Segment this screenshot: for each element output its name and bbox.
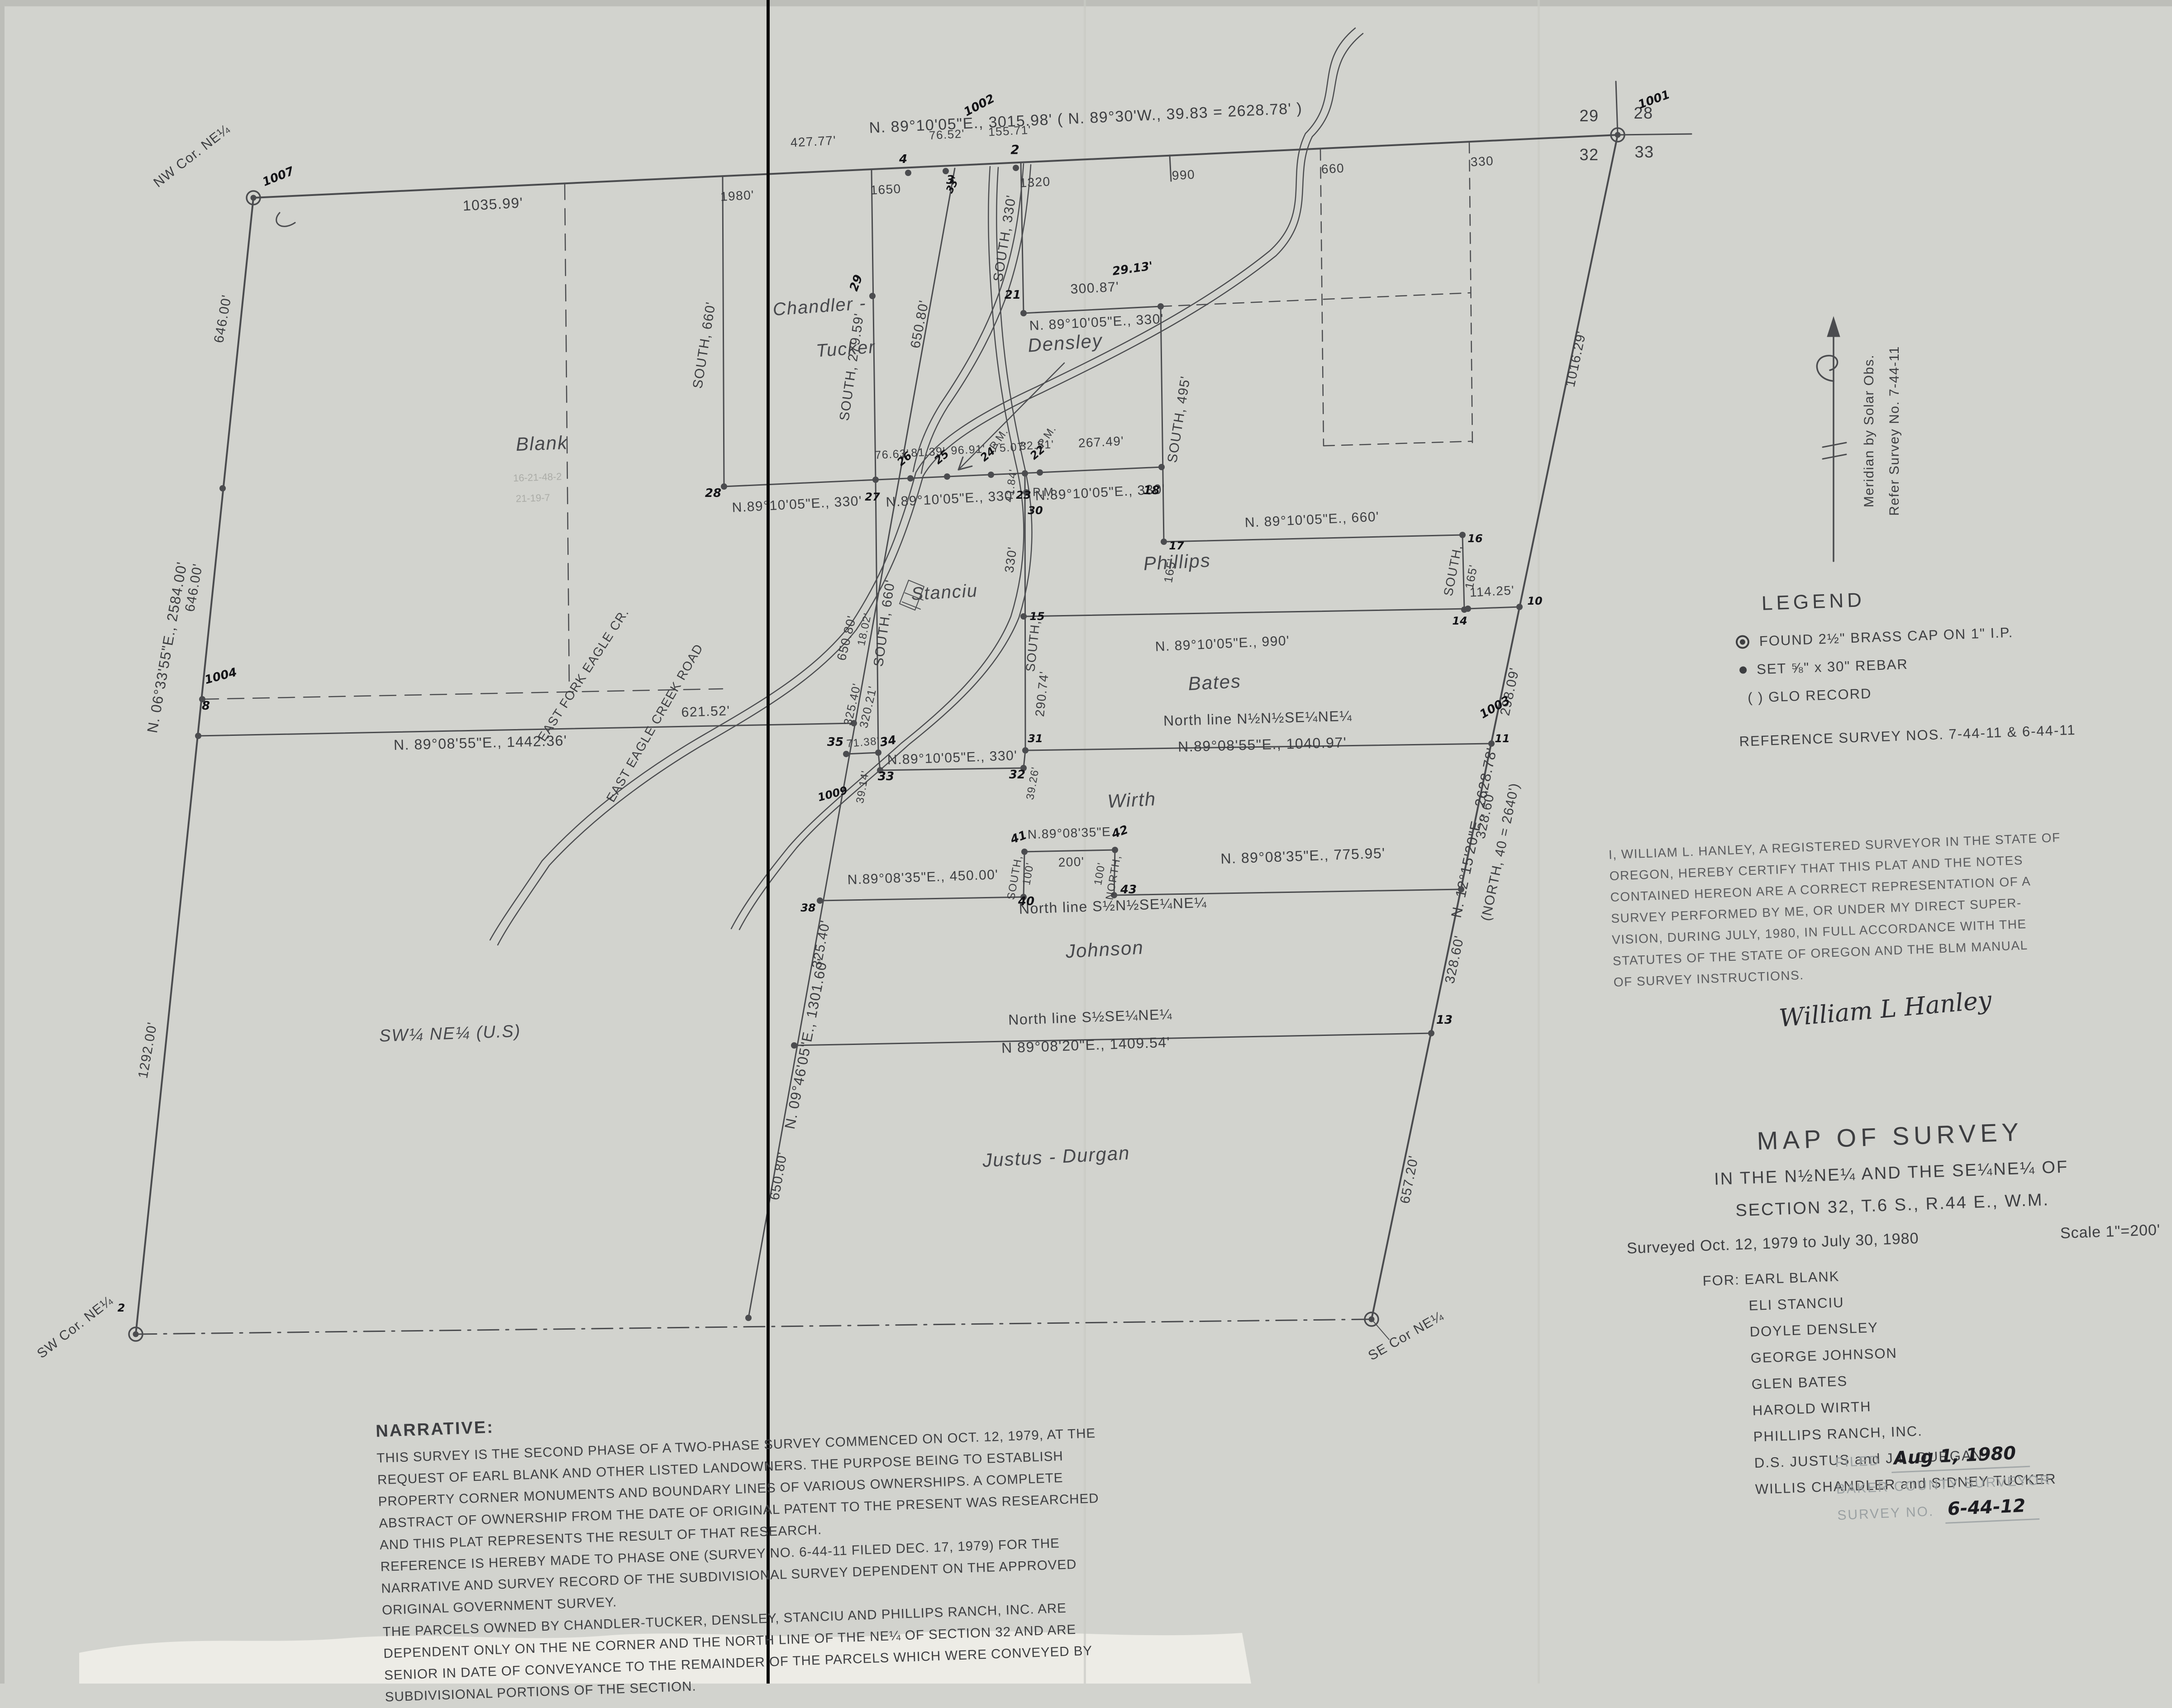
map-label: 39.14' — [854, 769, 872, 804]
map-label: SOUTH, 660' — [690, 301, 719, 390]
map-label: 71.38' — [846, 735, 880, 750]
certification-text: I, WILLIAM L. HANLEY, A REGISTERED SURVE… — [1608, 823, 2157, 993]
handwritten-note: 21 — [1005, 288, 1021, 302]
map-label: 1035.99' — [462, 195, 524, 214]
handwritten-note: 38 — [800, 902, 815, 914]
handwritten-note: 18 — [1143, 484, 1160, 497]
road-path — [731, 167, 1024, 929]
survey-line — [880, 768, 1024, 770]
survey-line — [1164, 535, 1462, 542]
survey-line — [1114, 889, 1461, 895]
client-name: ELI STANCIU — [1748, 1283, 2163, 1314]
map-label: NW Cor. NE¼ — [151, 121, 233, 190]
handwritten-note: 34 — [879, 733, 897, 749]
found-monument-center — [133, 1331, 139, 1337]
map-label: N. 09°46'05"E., 1301.60' — [781, 957, 831, 1131]
set-rebar-point — [1013, 165, 1019, 171]
survey-line — [1024, 850, 1115, 852]
parcel-name-label: Stanciu — [911, 581, 979, 604]
parcel-name-label: Johnson — [1065, 937, 1144, 962]
map-label: N.89°10'05"E., 330' — [886, 488, 1016, 510]
survey-line — [253, 135, 1618, 198]
map-label: SOUTH, 279.59' — [837, 312, 867, 421]
set-rebar-point — [843, 751, 849, 757]
parcel-name-label: Densley — [1027, 329, 1104, 356]
map-label: 330' — [1002, 546, 1019, 574]
surveyed-dates: Surveyed Oct. 12, 1979 to July 30, 1980 — [1626, 1230, 1919, 1258]
legend-item: FOUND 2½" BRASS CAP ON 1" I.P. — [1735, 622, 2072, 650]
survey-line — [136, 1319, 1372, 1334]
map-label: 33 — [1634, 143, 1654, 161]
set-rebar-point — [721, 483, 727, 490]
map-label: N.89°10'05"E., 330' — [732, 494, 862, 515]
handwritten-note: 11 — [1495, 732, 1510, 745]
survey-line — [820, 897, 1024, 901]
map-annotation-path — [276, 213, 295, 226]
road-path — [739, 167, 1032, 930]
survey-line — [1823, 454, 1846, 459]
map-label: SW Cor. NE¼ — [34, 1293, 116, 1361]
map-label: 16-21-48-2 — [513, 471, 562, 484]
narrative-lines: THIS SURVEY IS THE SECOND PHASE OF A TWO… — [376, 1415, 1335, 1708]
map-label: N. 89°08'35"E., 775.95' — [1220, 845, 1386, 867]
set-rebar-point — [1020, 310, 1027, 316]
handwritten-note: 28 — [705, 487, 721, 500]
legend-item: SET ⅝" x 30" REBAR — [1736, 650, 2073, 678]
found-monument-center — [251, 195, 257, 201]
map-label: 39.26' — [1024, 766, 1042, 801]
survey-line — [846, 753, 878, 754]
set-rebar-point — [1488, 740, 1495, 747]
legend-items: FOUND 2½" BRASS CAP ON 1" I.P.SET ⅝" x 3… — [1735, 622, 2074, 706]
set-rebar-point — [1020, 613, 1027, 620]
map-label: 427.77' — [790, 133, 837, 149]
survey-no-value: 6-44-12 — [1944, 1495, 2040, 1524]
handwritten-note: 4 — [899, 153, 907, 166]
handwritten-note: 14 — [1452, 615, 1467, 627]
map-scale: Scale 1"=200' — [2060, 1221, 2161, 1243]
filing-stamp: FILED Aug 1, 1980 BAKER COUNTY SURVEYOR … — [1834, 1441, 2053, 1535]
set-rebar-point — [195, 733, 201, 739]
map-label: 1016.29' — [1562, 329, 1589, 388]
client-name: GEORGE JOHNSON — [1750, 1336, 2165, 1366]
set-rebar-point — [944, 473, 950, 480]
map-label: 1980' — [720, 188, 755, 204]
map-label: 200' — [1058, 854, 1085, 869]
parcel-name-label: Bates — [1187, 670, 1242, 694]
handwritten-note: 41 — [1008, 828, 1029, 847]
legend: LEGEND FOUND 2½" BRASS CAP ON 1" I.P.SET… — [1734, 582, 2076, 750]
survey-line — [1324, 441, 1472, 446]
set-rebar-point — [869, 293, 876, 299]
handwritten-note: 8 — [202, 699, 210, 713]
set-rebar-point — [791, 1042, 797, 1049]
map-label: 330 — [1470, 154, 1494, 169]
set-rebar-point — [1158, 464, 1165, 470]
handwritten-note: 40 — [1018, 895, 1034, 908]
map-label: 650.80' — [834, 614, 859, 662]
map-label: 660 — [1321, 161, 1345, 177]
parcel-name-label: Wirth — [1107, 788, 1157, 812]
client-name: PHILLIPS RANCH, INC. — [1753, 1414, 2167, 1445]
set-rebar-point — [1022, 747, 1029, 754]
survey-line — [1618, 134, 1691, 135]
map-label: 155.71' — [988, 123, 1031, 139]
map-label: 990 — [1172, 167, 1196, 183]
narrative: NARRATIVE: THIS SURVEY IS THE SECOND PHA… — [376, 1389, 1335, 1708]
handwritten-note: 1001 — [1636, 88, 1672, 112]
legend-item-text: SET ⅝" x 30" REBAR — [1756, 656, 1908, 678]
survey-line — [1372, 1319, 1389, 1340]
set-rebar-point — [872, 477, 879, 483]
map-label: 290.74' — [1033, 670, 1051, 717]
handwritten-note: 30 — [1028, 504, 1043, 517]
handwritten-note: 10 — [1527, 595, 1542, 607]
survey-line — [723, 177, 724, 487]
map-label: SOUTH, — [1441, 544, 1465, 597]
map-label: 18.02' — [855, 612, 874, 647]
survey-line — [1616, 81, 1618, 135]
survey-line — [1468, 607, 1519, 609]
handwritten-note: 1004 — [203, 665, 238, 687]
set-rebar-icon — [1739, 666, 1747, 674]
set-rebar-point — [1459, 532, 1466, 538]
survey-line — [1372, 135, 1618, 1319]
survey-no-label: SURVEY NO. — [1837, 1504, 1934, 1523]
title-block: MAP OF SURVEY IN THE N½NE¼ AND THE SE¼NE… — [1623, 1112, 2169, 1502]
handwritten-note: 35 — [827, 735, 843, 749]
set-rebar-point — [1037, 469, 1043, 476]
set-rebar-point — [745, 1315, 752, 1321]
survey-sheet: NW Cor. NE¼10071035.99'N. 89°10'05"E., 3… — [0, 0, 2172, 1684]
map-label: N. 89°10'05"E., 990' — [1155, 633, 1290, 654]
county-surveyor-label: BAKER COUNTY SURVEYOR — [1836, 1473, 2051, 1498]
survey-line — [1469, 142, 1472, 446]
handwritten-note: 2 — [118, 1302, 125, 1314]
set-rebar-point — [1428, 1030, 1434, 1036]
map-label: SOUTH, 660' — [871, 578, 898, 668]
handwritten-note: 31 — [1028, 732, 1043, 745]
parcel-name-label: Phillips — [1143, 549, 1211, 574]
map-label: EAST FORK EAGLE CR. — [535, 606, 631, 744]
survey-line — [1161, 306, 1164, 542]
surveyor-signature: William L Hanley — [1778, 986, 1993, 1033]
for-label: FOR: EARL BLANK — [1702, 1257, 2162, 1289]
map-label: N.89°08'35"E., 450.00' — [847, 867, 999, 887]
map-label: 621.52' — [681, 703, 730, 720]
map-label: N.89°10'05"E., 330' — [887, 748, 1018, 768]
survey-line — [872, 169, 876, 480]
client-name: HAROLD WIRTH — [1752, 1388, 2167, 1419]
found-monument-center — [1615, 132, 1621, 138]
handwritten-note: 17 — [1169, 539, 1184, 552]
handwritten-note: 13 — [1436, 1013, 1453, 1027]
map-label: N 89°08'20"E., 1409.54' — [1001, 1034, 1170, 1056]
handwritten-note: 29 — [847, 273, 866, 293]
map-label: North line N½N½SE¼NE¼ — [1163, 708, 1353, 729]
set-rebar-point — [1516, 604, 1523, 610]
survey-line — [1170, 155, 1171, 181]
set-rebar-point — [905, 170, 911, 176]
map-label: 1292.00' — [135, 1021, 160, 1079]
handwritten-note: 32 — [1009, 768, 1025, 782]
handwritten-note: 23 — [1016, 489, 1031, 501]
map-label: 650.80' — [767, 1150, 790, 1201]
handwritten-note: 29.13' — [1111, 259, 1154, 278]
parcel-name-label: SW¼ NE¼ (U.S) — [379, 1022, 521, 1046]
found-monument-center — [1369, 1317, 1375, 1322]
legend-item-text: ( ) GLO RECORD — [1748, 686, 1872, 706]
set-rebar-point — [817, 897, 823, 904]
map-label: Refer Survey No. 7-44-11 — [1887, 346, 1902, 516]
map-label: N.89°08'35"E. — [1027, 825, 1115, 842]
set-rebar-point — [1161, 539, 1167, 545]
map-label: EAST EAGLE CREEK ROAD — [604, 641, 706, 804]
handwritten-note: 15 — [1029, 610, 1044, 623]
set-rebar-point — [219, 485, 226, 491]
map-annotation-path — [1827, 317, 1840, 337]
survey-line — [1024, 609, 1468, 616]
set-rebar-point — [1112, 847, 1118, 853]
map-label: 650.80' — [908, 299, 932, 349]
set-rebar-point — [1022, 470, 1028, 477]
filed-label: FILED — [1835, 1453, 1881, 1470]
survey-line — [136, 198, 253, 1334]
map-label: 1320 — [1019, 174, 1051, 190]
map-subtitle-1: IN THE N½NE¼ AND THE SE¼NE¼ OF — [1624, 1155, 2158, 1193]
scan-edge-left — [0, 0, 5, 1684]
map-annotation-path — [1817, 356, 1837, 381]
map-label: 646.00' — [211, 293, 234, 344]
found-brass-cap-icon — [1735, 635, 1749, 649]
parcel-name-label: Justus - Durgan — [981, 1142, 1130, 1171]
map-label: North line S½N½SE¼NE¼ — [1019, 894, 1207, 917]
map-label: 1650 — [870, 181, 902, 197]
legend-item-text: FOUND 2½" BRASS CAP ON 1" I.P. — [1759, 625, 2013, 650]
paper-crease — [1538, 0, 1540, 1684]
handwritten-note: 2 — [1010, 142, 1019, 157]
map-label: 267.49' — [1078, 434, 1124, 450]
handwritten-note: 16 — [1467, 532, 1482, 545]
map-label: 300.87' — [1070, 279, 1120, 297]
map-subtitle-2: SECTION 32, T.6 S., R.44 E., W.M. — [1625, 1187, 2160, 1225]
map-label: 76.52' — [929, 127, 965, 142]
map-label: 114.25' — [1469, 583, 1515, 599]
handwritten-note: 1007 — [261, 164, 296, 189]
survey-line — [202, 689, 723, 699]
creek-path — [490, 28, 1355, 940]
map-label: 29 — [1579, 106, 1599, 125]
map-label: N. 89°10'05"E., 660' — [1244, 509, 1380, 530]
creek-path — [498, 33, 1363, 945]
legend-item: ( ) GLO RECORD — [1738, 678, 2075, 706]
survey-line — [1823, 443, 1846, 447]
map-label: N.89°08'55"E., 1040.97' — [1178, 734, 1347, 755]
map-label: 100' — [1092, 861, 1108, 886]
map-label: 21-19-7 — [515, 492, 550, 505]
set-rebar-point — [988, 472, 994, 478]
map-label: SOUTH, — [1023, 619, 1043, 672]
map-label: Meridian by Solar Obs. — [1862, 354, 1877, 507]
survey-line — [1024, 306, 1161, 313]
map-label: N. 06°33'55"E., 2584.00' — [144, 560, 190, 734]
set-rebar-point — [1021, 849, 1028, 855]
survey-line — [724, 467, 1162, 487]
handwritten-note: 33 — [878, 770, 894, 783]
set-rebar-point — [1157, 303, 1164, 310]
survey-line — [1025, 473, 1025, 750]
map-label: SOUTH, 495' — [1165, 375, 1193, 464]
map-label: 32 — [1579, 145, 1599, 164]
map-label: North line S½SE¼NE¼ — [1008, 1006, 1173, 1028]
survey-line — [1320, 149, 1324, 446]
handwritten-note: 43 — [1120, 883, 1137, 897]
set-rebar-point — [1465, 606, 1471, 612]
handwritten-note: 1003 — [1477, 693, 1513, 721]
set-rebar-point — [875, 749, 881, 756]
map-label: P.M. — [1033, 485, 1058, 499]
parcel-name-label: Blank — [515, 432, 568, 455]
set-rebar-point — [907, 475, 914, 482]
client-name: DOYLE DENSLEY — [1749, 1309, 2164, 1340]
client-name: GLEN BATES — [1751, 1362, 2166, 1393]
handwritten-note: 27 — [865, 491, 880, 503]
